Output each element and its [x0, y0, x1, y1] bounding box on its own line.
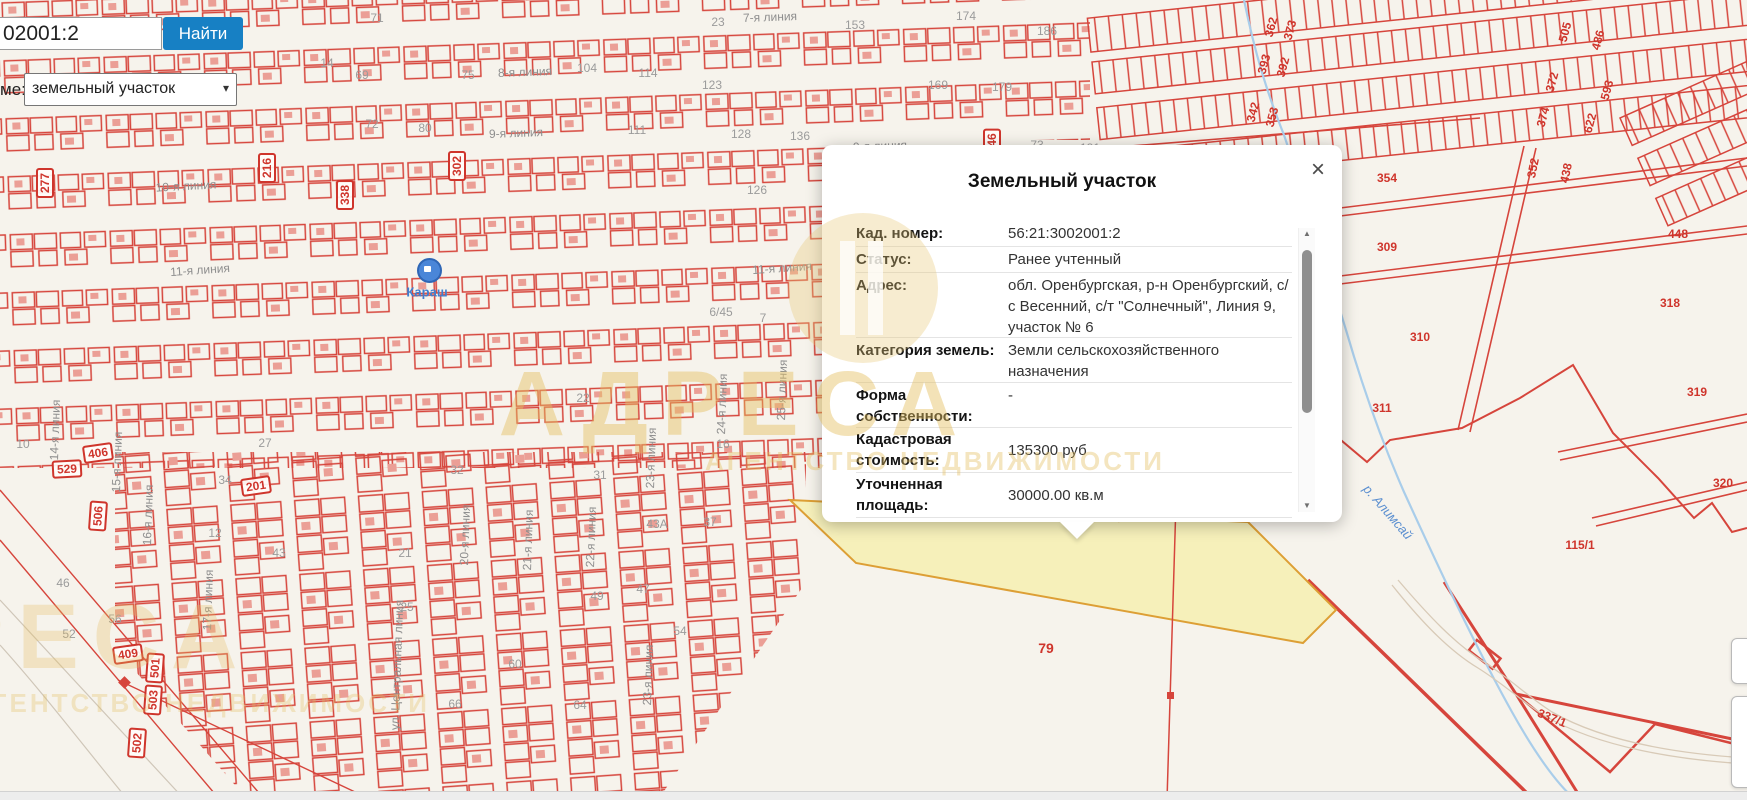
field-label: Кад. номер: [856, 223, 1004, 244]
field-label: Статус: [856, 249, 1004, 270]
field-value: 56:21:3002001:2 [1004, 223, 1292, 244]
popup-field-row: Статус:Ранее учтенный [856, 247, 1292, 273]
field-label: Уточненная площадь: [856, 474, 1004, 516]
cadastral-map-app: { "colors":{"accent_blue":"#1780c4","par… [0, 0, 1747, 800]
popup-field-row: Форма собственности:- [856, 383, 1292, 428]
layer-select-value: земельный участок [32, 80, 175, 97]
bottom-bar [0, 791, 1747, 800]
layer-select[interactable]: земельный участок ▾ [24, 73, 237, 106]
dirt-roads [1392, 580, 1747, 764]
find-button[interactable]: Найти [163, 17, 243, 50]
close-icon[interactable]: × [1306, 159, 1330, 183]
field-value: 135300 руб [1004, 440, 1292, 461]
chevron-down-icon: ▾ [223, 74, 229, 103]
boundary-point [1167, 692, 1174, 699]
field-label: Кадастровая стоимость: [856, 429, 1004, 471]
field-value: обл. Оренбургская, р-н Оренбургский, с/с… [1004, 273, 1292, 338]
popup-field-row: Уточненная площадь:30000.00 кв.м [856, 473, 1292, 518]
layer-select-label: ме: [0, 80, 26, 100]
popup-field-row: Кадастровая стоимость:135300 руб [856, 428, 1292, 473]
scroll-down-icon[interactable]: ▼ [1299, 500, 1315, 512]
store-poi-icon[interactable] [417, 258, 442, 283]
popup-pointer-tail [1060, 522, 1094, 539]
popup-field-row: Категория земель:Земли сельскохозяйствен… [856, 338, 1292, 383]
field-label: Категория земель: [856, 338, 1004, 361]
popup-fields: Кад. номер:56:21:3002001:2Статус:Ранее у… [856, 221, 1292, 522]
field-value [1004, 518, 1292, 520]
field-value: - [1004, 383, 1292, 406]
popup-field-row: Кад. номер:56:21:3002001:2 [856, 221, 1292, 247]
search-input[interactable]: 02001:2 [0, 17, 162, 50]
map-control-button[interactable] [1731, 696, 1747, 788]
popup-title: Земельный участок [822, 171, 1302, 193]
field-label: Адрес: [856, 273, 1004, 296]
survey-point-marker [118, 676, 131, 689]
parcel-grid-bottomleft [115, 452, 806, 800]
scrollbar-thumb[interactable] [1302, 250, 1312, 413]
field-label: Форма собственности: [856, 383, 1004, 427]
popup-scrollbar[interactable]: ▲ ▼ [1298, 228, 1315, 512]
scroll-up-icon[interactable]: ▲ [1299, 228, 1315, 240]
popup-field-row: Адрес:обл. Оренбургская, р-н Оренбургски… [856, 273, 1292, 338]
field-value: Ранее учтенный [1004, 249, 1292, 270]
field-value: 30000.00 кв.м [1004, 485, 1292, 506]
map-control-button[interactable] [1731, 638, 1747, 684]
parcel-info-popup: Земельный участок × Кад. номер:56:21:300… [822, 145, 1342, 522]
field-value: Земли сельскохозяйственного назначения [1004, 338, 1292, 382]
boundary-lines-bottomright [1308, 580, 1747, 800]
field-label: Разрешенное [856, 518, 1004, 522]
